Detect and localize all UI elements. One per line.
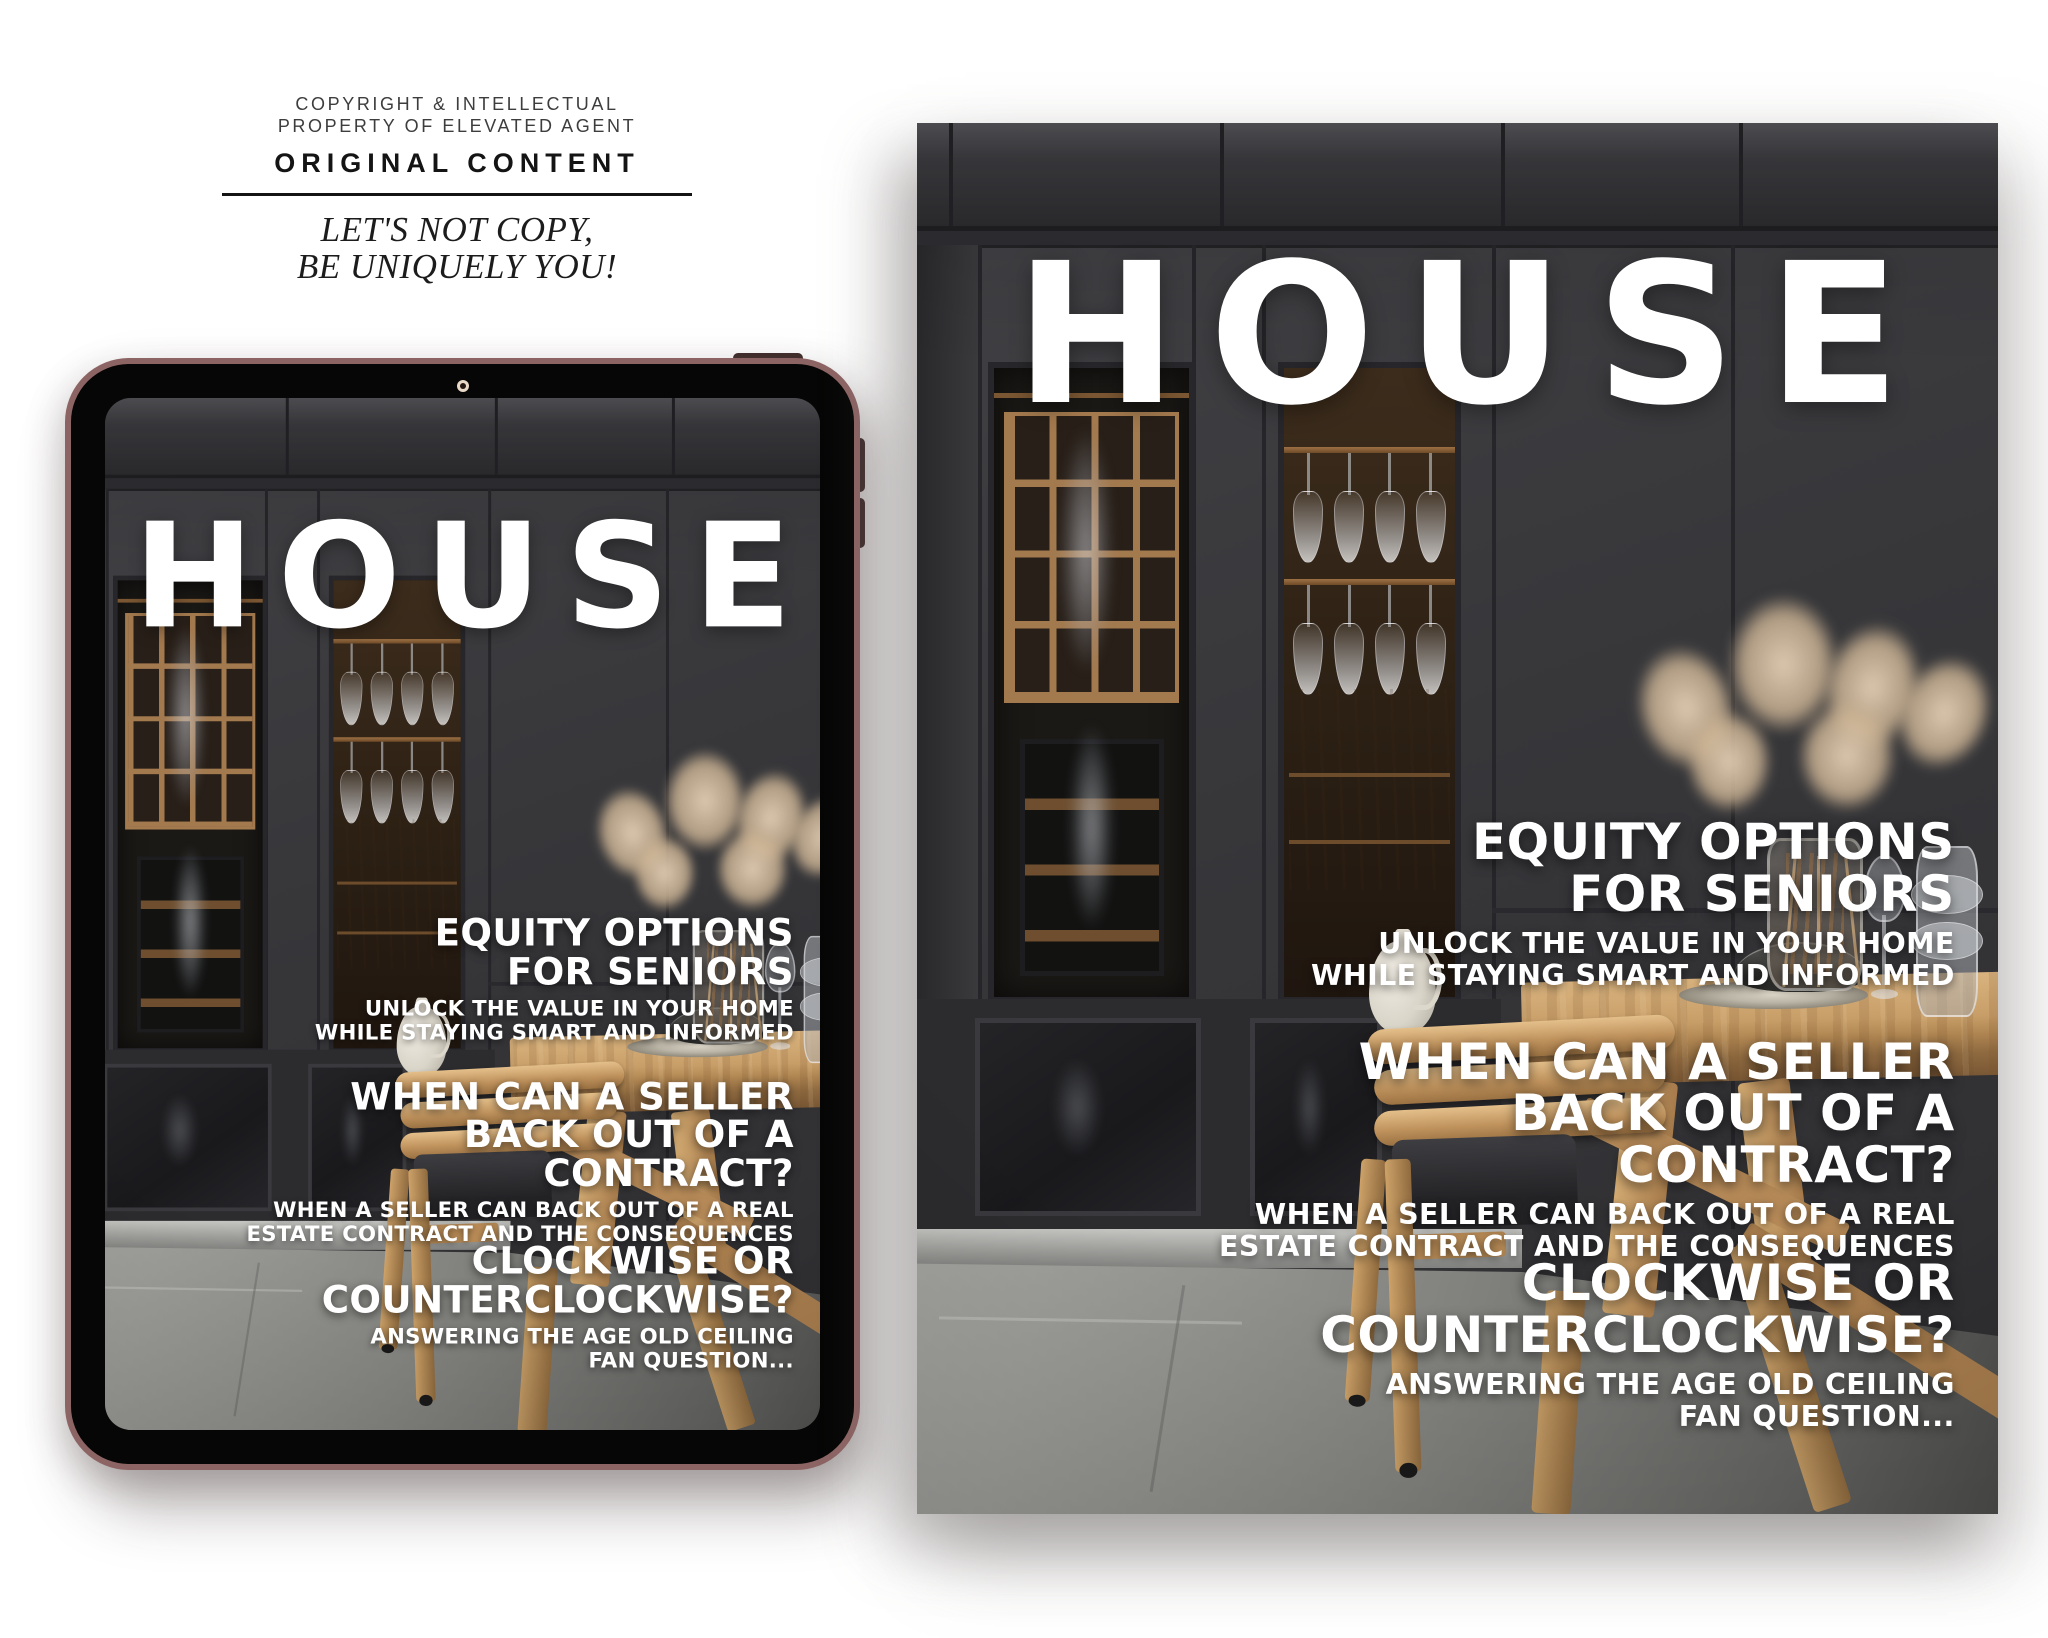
copyright-line: PROPERTY OF ELEVATED AGENT [222, 116, 692, 138]
feature-subheadline: UNLOCK THE VALUE IN YOUR HOME WHILE STAY… [982, 928, 1955, 992]
promo-graphic-canvas: COPYRIGHT & INTELLECTUAL PROPERTY OF ELE… [0, 0, 2048, 1638]
divider-rule [222, 193, 692, 196]
copyright-notice: COPYRIGHT & INTELLECTUAL PROPERTY OF ELE… [222, 94, 692, 137]
tablet-frame: HOUSE EQUITY OPTIONS FOR SENIORS UNLOCK … [65, 358, 860, 1470]
tablet-mockup: HOUSE EQUITY OPTIONS FOR SENIORS UNLOCK … [65, 358, 860, 1470]
tagline-line: LET'S NOT COPY, [222, 211, 692, 248]
feature-subheadline-line: WHILE STAYING SMART AND INFORMED [982, 960, 1955, 992]
feature-subheadline: UNLOCK THE VALUE IN YOUR HOME WHILE STAY… [133, 997, 794, 1044]
feature-subheadline-line: FAN QUESTION... [982, 1401, 1955, 1433]
feature-headline-line: FOR SENIORS [133, 953, 794, 991]
feature-subheadline-line: ANSWERING THE AGE OLD CEILING [133, 1325, 794, 1349]
feature-headline-line: BACK OUT OF A [133, 1116, 794, 1154]
feature-headline-line: CONTRACT? [982, 1140, 1955, 1192]
original-content-label: ORIGINAL CONTENT [222, 148, 692, 179]
feature-subheadline-line: UNLOCK THE VALUE IN YOUR HOME [982, 928, 1955, 960]
feature-headline-line: WHEN CAN A SELLER [133, 1078, 794, 1116]
feature-headline-line: BACK OUT OF A [982, 1088, 1955, 1140]
feature-block-equity-options: EQUITY OPTIONS FOR SENIORS UNLOCK THE VA… [982, 817, 1955, 992]
feature-block-equity-options: EQUITY OPTIONS FOR SENIORS UNLOCK THE VA… [133, 914, 794, 1044]
feature-subheadline: ANSWERING THE AGE OLD CEILING FAN QUESTI… [982, 1369, 1955, 1433]
feature-subheadline-line: WHILE STAYING SMART AND INFORMED [133, 1021, 794, 1045]
feature-headline-line: COUNTERCLOCKWISE? [982, 1310, 1955, 1362]
feature-subheadline-line: WHEN A SELLER CAN BACK OUT OF A REAL [133, 1199, 794, 1223]
branding-block: COPYRIGHT & INTELLECTUAL PROPERTY OF ELE… [222, 94, 692, 285]
magazine-cover: HOUSE EQUITY OPTIONS FOR SENIORS UNLOCK … [917, 123, 1998, 1514]
feature-block-ceiling-fan: CLOCKWISE OR COUNTERCLOCKWISE? ANSWERING… [133, 1242, 794, 1372]
tagline-line: BE UNIQUELY YOU! [222, 248, 692, 285]
feature-headline-line: CONTRACT? [133, 1155, 794, 1193]
feature-headline-line: CLOCKWISE OR [982, 1258, 1955, 1310]
feature-headline-line: CLOCKWISE OR [133, 1242, 794, 1280]
feature-subheadline: ANSWERING THE AGE OLD CEILING FAN QUESTI… [133, 1325, 794, 1372]
feature-subheadline-line: ANSWERING THE AGE OLD CEILING [982, 1369, 1955, 1401]
camera-lens-icon [460, 383, 466, 389]
feature-headline-line: FOR SENIORS [982, 869, 1955, 921]
feature-subheadline-line: WHEN A SELLER CAN BACK OUT OF A REAL [982, 1199, 1955, 1231]
magazine-title: HOUSE [105, 504, 820, 649]
tablet-cover-slot: HOUSE EQUITY OPTIONS FOR SENIORS UNLOCK … [105, 398, 820, 1430]
feature-subheadline-line: UNLOCK THE VALUE IN YOUR HOME [133, 997, 794, 1021]
feature-block-seller-contract: WHEN CAN A SELLER BACK OUT OF A CONTRACT… [133, 1078, 794, 1246]
tablet-screen: HOUSE EQUITY OPTIONS FOR SENIORS UNLOCK … [105, 398, 820, 1430]
copyright-line: COPYRIGHT & INTELLECTUAL [222, 94, 692, 116]
feature-headline-line: EQUITY OPTIONS [133, 914, 794, 952]
feature-subheadline-line: FAN QUESTION... [133, 1349, 794, 1373]
feature-headline-line: EQUITY OPTIONS [982, 817, 1955, 869]
print-cover-slot: HOUSE EQUITY OPTIONS FOR SENIORS UNLOCK … [917, 123, 1998, 1514]
tagline: LET'S NOT COPY, BE UNIQUELY YOU! [222, 211, 692, 285]
magazine-title: HOUSE [917, 237, 1998, 432]
magazine-cover: HOUSE EQUITY OPTIONS FOR SENIORS UNLOCK … [105, 398, 820, 1430]
feature-block-ceiling-fan: CLOCKWISE OR COUNTERCLOCKWISE? ANSWERING… [982, 1258, 1955, 1433]
feature-headline-line: COUNTERCLOCKWISE? [133, 1281, 794, 1319]
feature-block-seller-contract: WHEN CAN A SELLER BACK OUT OF A CONTRACT… [982, 1037, 1955, 1263]
feature-headline-line: WHEN CAN A SELLER [982, 1037, 1955, 1089]
front-camera [457, 380, 469, 392]
